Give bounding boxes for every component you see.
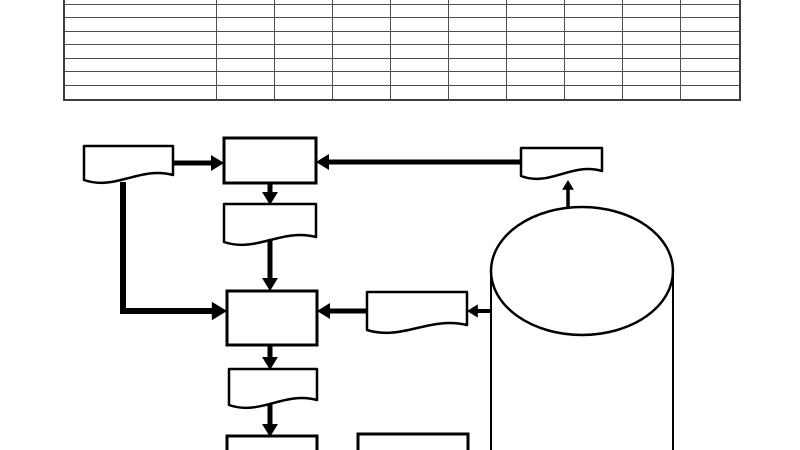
arrowhead-doc-mid-to-process-mid <box>262 278 278 291</box>
arrowhead-cylinder-to-doc-right <box>467 304 478 317</box>
document-top-right-shape <box>521 148 602 179</box>
arrowhead-cylinder-to-doc-top-right <box>562 180 574 190</box>
document-top-left-shape <box>84 146 173 183</box>
process-bottom-left-shape <box>227 436 317 450</box>
document-page <box>0 0 800 450</box>
arrowhead-doc-top-left-to-process-top <box>211 155 224 171</box>
flowchart-canvas <box>0 0 800 450</box>
process-mid-shape <box>227 291 317 345</box>
document-right-shape <box>367 292 467 333</box>
connector-line-doc-top-left-to-process-mid <box>123 182 214 311</box>
arrowhead-doc-right-to-process-mid <box>317 303 330 319</box>
process-top-shape <box>224 138 316 183</box>
arrowhead-doc-top-left-to-process-mid <box>212 302 227 321</box>
arrowhead-doc-top-right-to-process-top <box>316 154 329 170</box>
database-cylinder-top-ellipse <box>491 207 673 335</box>
document-lower-shape <box>229 369 317 408</box>
process-bottom-mid-shape <box>358 434 468 450</box>
document-mid-shape <box>224 204 316 245</box>
